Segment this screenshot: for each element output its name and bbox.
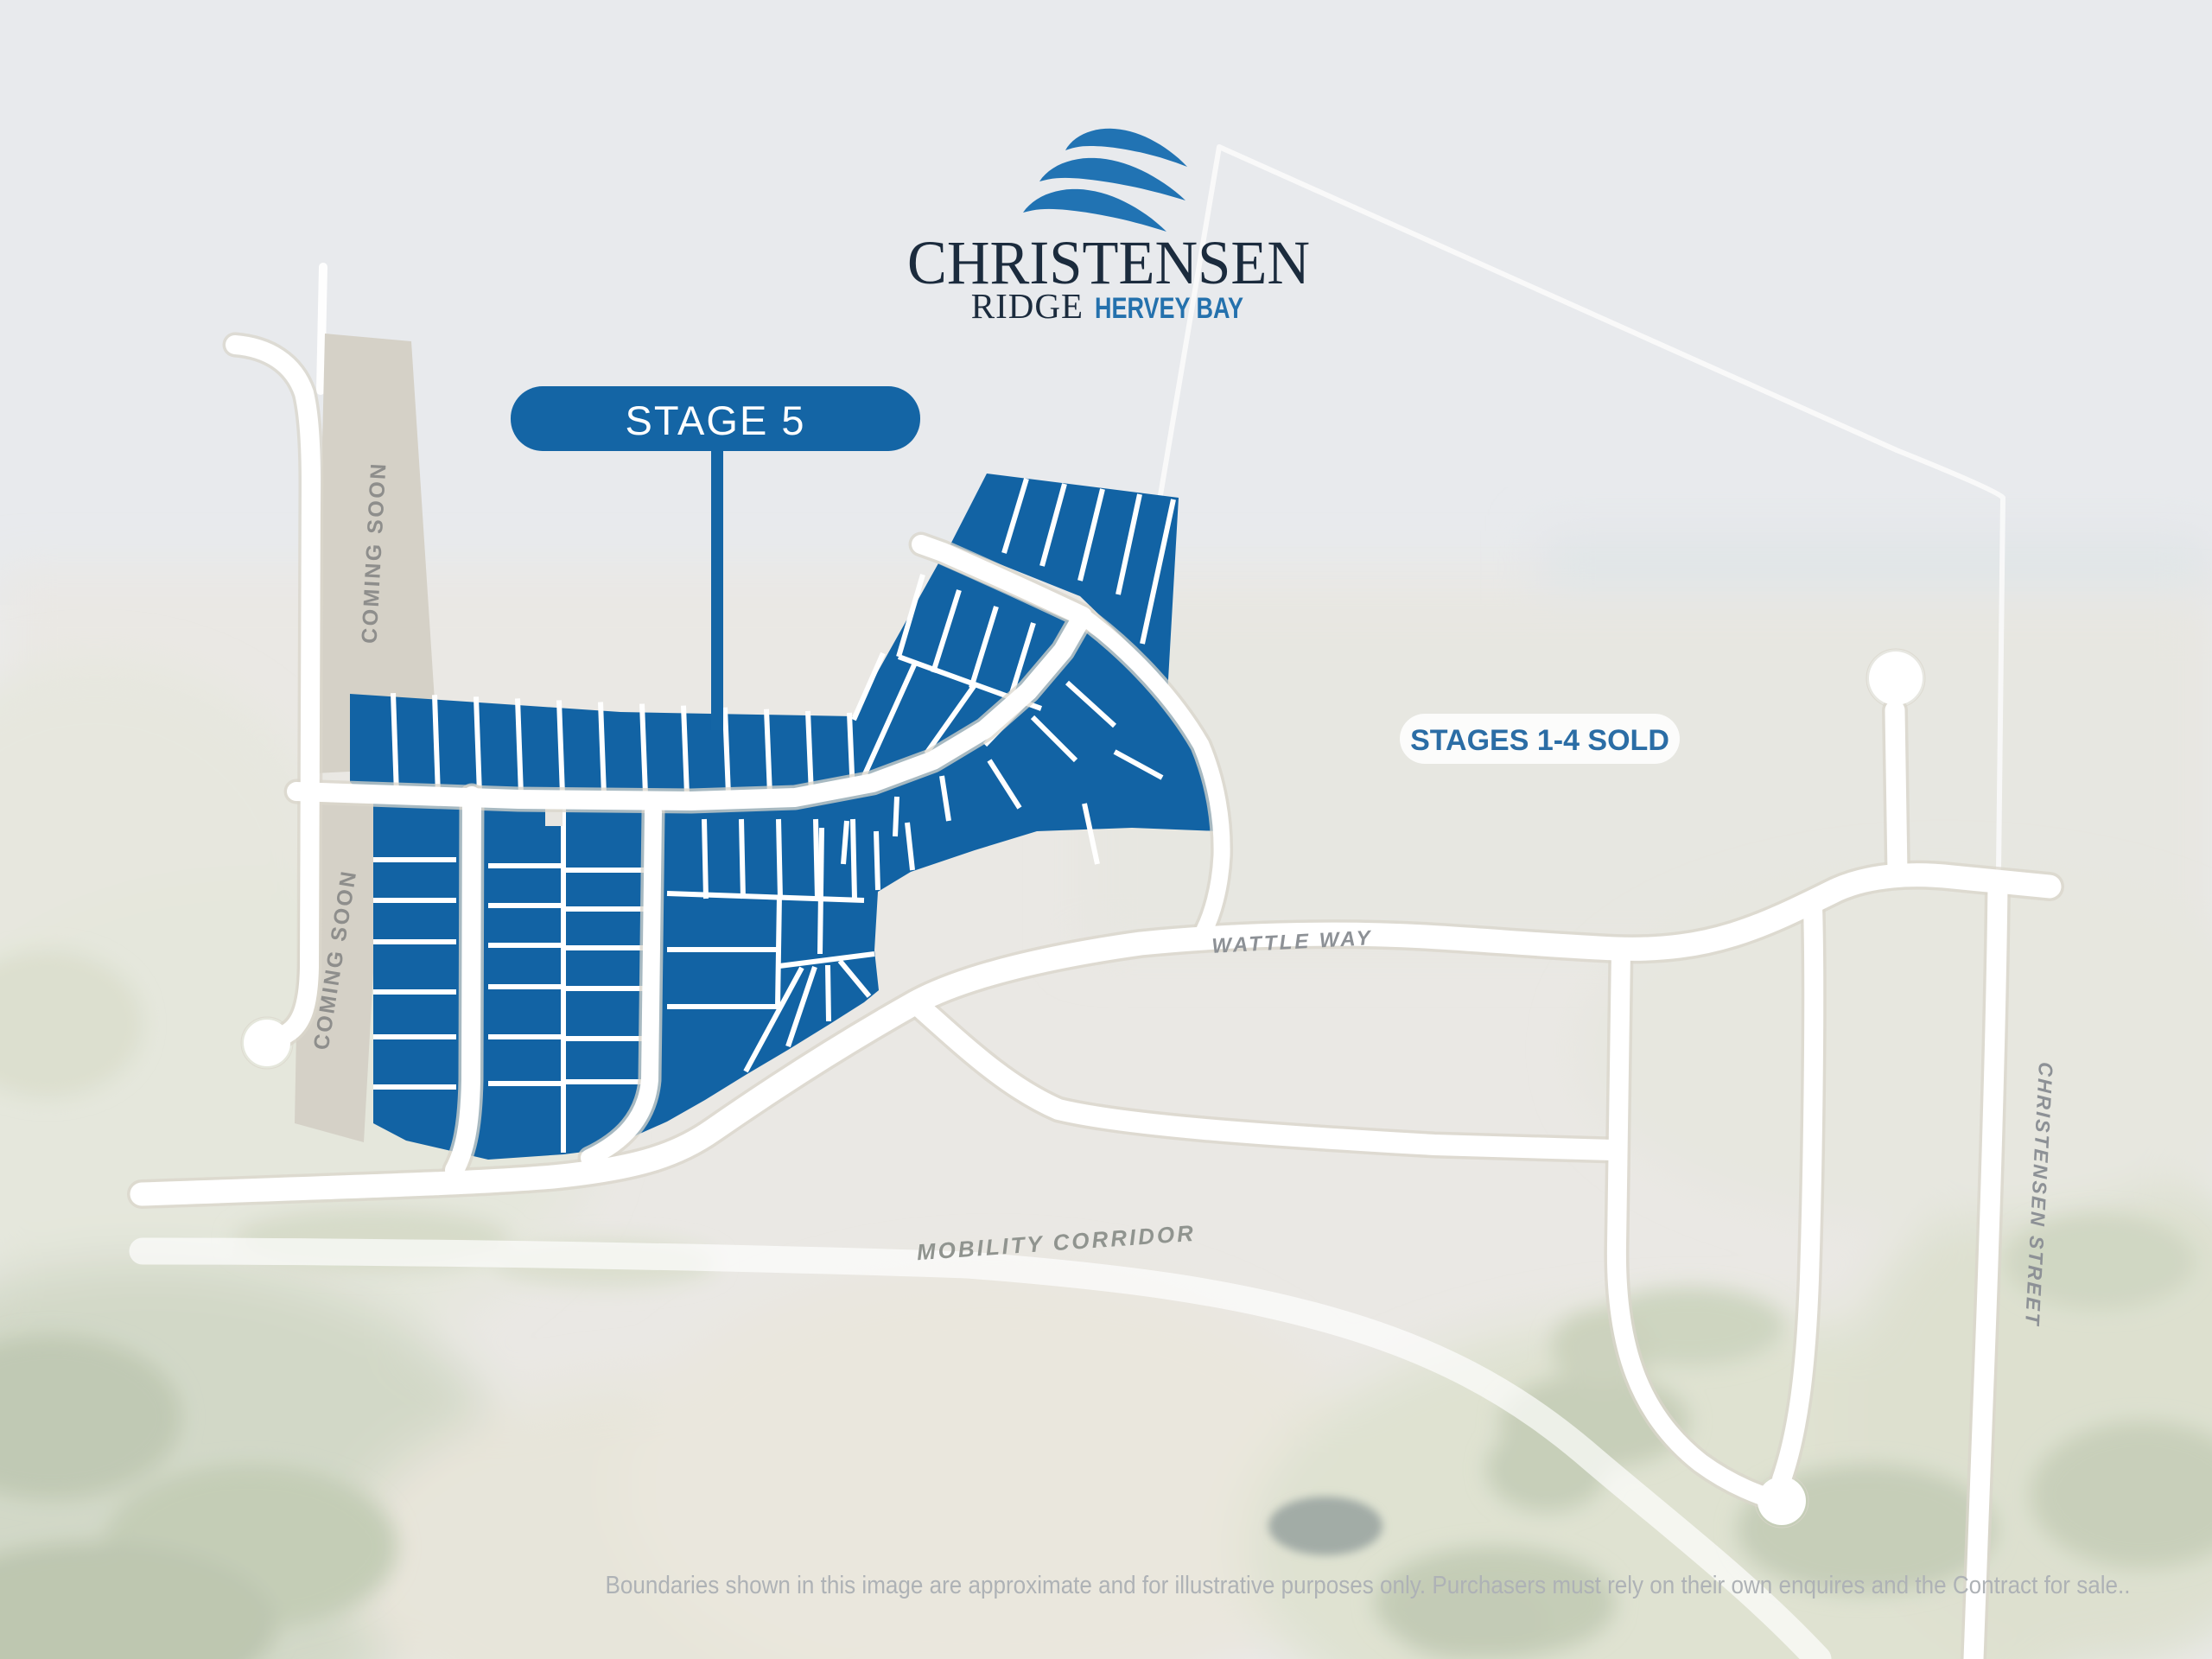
svg-text:HERVEY BAY: HERVEY BAY [1095, 292, 1243, 325]
svg-text:RIDGE: RIDGE [971, 286, 1084, 326]
svg-text:Boundaries shown in this image: Boundaries shown in this image are appro… [606, 1572, 2131, 1599]
svg-text:CHRISTENSEN: CHRISTENSEN [907, 228, 1310, 297]
svg-text:STAGE 5: STAGE 5 [625, 397, 805, 443]
svg-text:STAGES 1-4 SOLD: STAGES 1-4 SOLD [1410, 724, 1669, 757]
